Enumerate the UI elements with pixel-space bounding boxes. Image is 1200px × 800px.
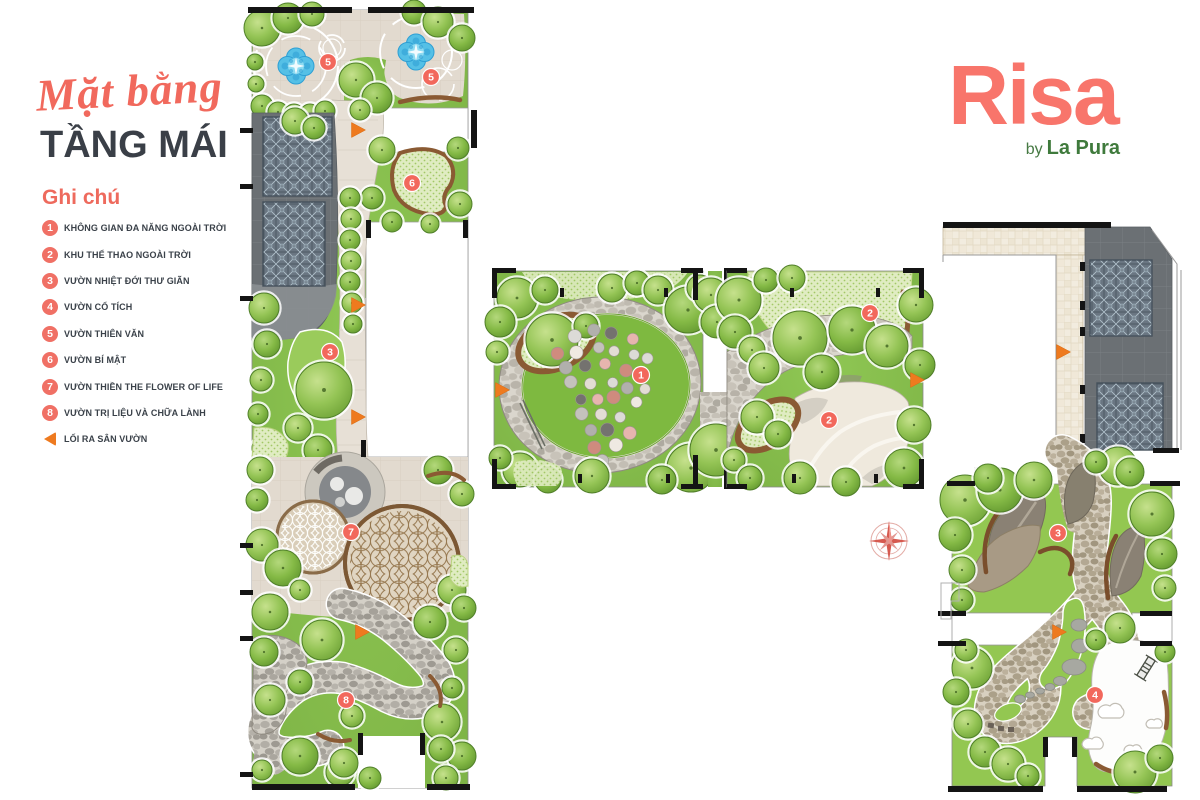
svg-text:7: 7 [348, 527, 354, 539]
svg-text:5: 5 [428, 72, 434, 84]
svg-text:3: 3 [327, 347, 333, 359]
svg-text:3: 3 [1055, 528, 1061, 540]
svg-text:2: 2 [826, 415, 832, 427]
svg-text:2: 2 [867, 308, 873, 320]
svg-text:4: 4 [1092, 690, 1098, 702]
svg-text:1: 1 [638, 370, 644, 382]
svg-text:6: 6 [409, 178, 415, 190]
svg-text:8: 8 [343, 695, 349, 707]
svg-text:5: 5 [325, 57, 331, 69]
